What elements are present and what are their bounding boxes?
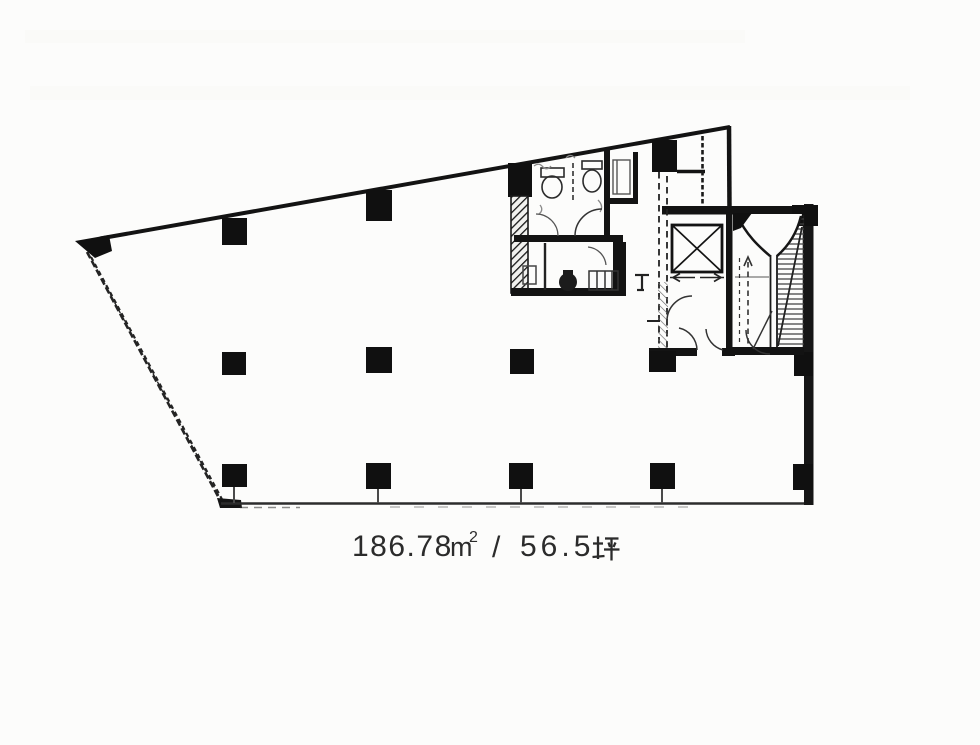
svg-text:2: 2 xyxy=(469,529,478,546)
svg-text:186.78: 186.78 xyxy=(352,530,453,563)
svg-text:56.5: 56.5 xyxy=(520,530,594,563)
svg-text:/: / xyxy=(492,531,501,564)
